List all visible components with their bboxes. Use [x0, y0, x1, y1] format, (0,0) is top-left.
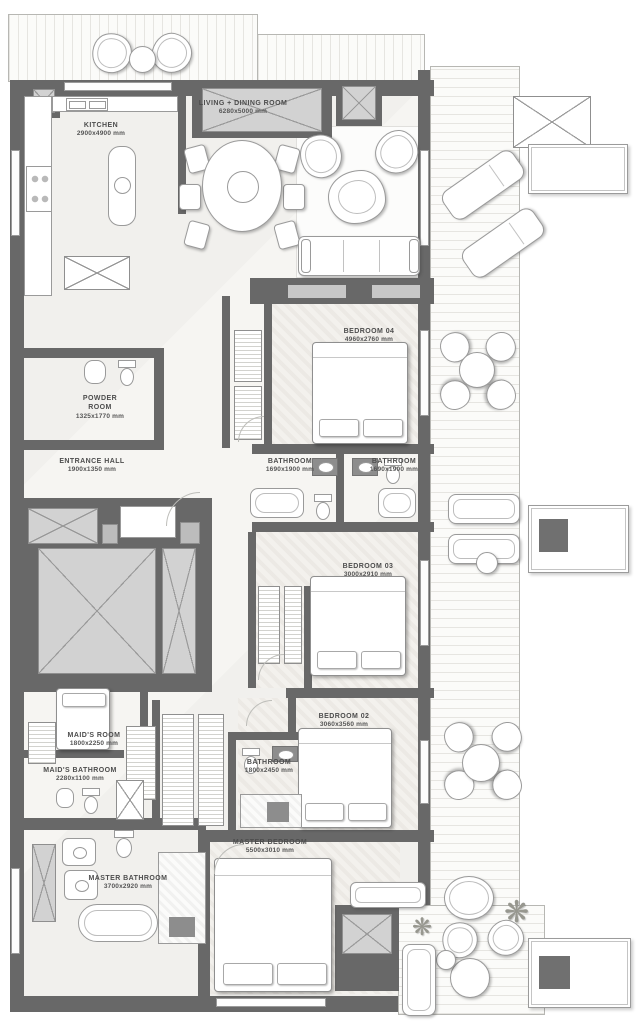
toilet-bowl: [120, 368, 134, 386]
terrace-table-3: [450, 958, 490, 998]
wardrobe: [234, 330, 262, 382]
pillow: [361, 651, 401, 669]
room-label-bathroom-a: BATHROOM 1690x1900 mm: [255, 457, 325, 475]
sink-basin: [69, 101, 86, 109]
sink-basin: [89, 101, 106, 109]
master-toilet: [114, 830, 134, 858]
dining-chair: [179, 184, 201, 210]
blanket-line: [311, 591, 405, 592]
powder-toilet: [118, 360, 136, 386]
dining-table: [202, 140, 282, 232]
room-label-powder-room: POWDER ROOM 1325x1770 mm: [70, 394, 130, 422]
wall-corridor-bed04: [222, 296, 230, 448]
bench-cushion: [355, 887, 421, 903]
window-bed02: [420, 740, 429, 804]
toilet-bowl: [84, 796, 98, 814]
terrace-side-table: [476, 552, 498, 574]
tv-console-2: [372, 285, 420, 298]
blanket-line: [313, 357, 407, 358]
bench-cushion: [453, 499, 515, 519]
wall-bed03-bed02: [286, 688, 434, 698]
maid-shower: [116, 780, 144, 820]
floor-plan: ❋ ❋: [0, 0, 641, 1024]
toilet-a: [314, 494, 332, 520]
master-bathtub: [78, 904, 158, 942]
bed-bedroom-03: [310, 576, 406, 676]
shower-tray: [383, 493, 411, 513]
toilet-bowl: [116, 838, 132, 858]
pillow: [305, 803, 344, 821]
room-label-bedroom-02: BEDROOM 02 3060x3560 mm: [289, 712, 399, 730]
room-label-maids-room: MAID'S ROOM 1800x2250 mm: [39, 731, 149, 749]
island-hob: [114, 177, 131, 194]
wall-bed03-left: [248, 532, 256, 688]
room-label-bathroom-c: BATHROOM 1800x2450 mm: [234, 758, 304, 776]
pillow: [317, 651, 357, 669]
small-duct-1: [102, 524, 118, 544]
terrace-side-table-2: [436, 950, 456, 970]
window-master-bottom: [216, 998, 326, 1007]
terrace-bench: [448, 494, 520, 524]
window-kitchen-left: [11, 150, 20, 236]
top-balcony-deck: [8, 14, 258, 82]
toilet-tank: [82, 788, 100, 796]
sofa-armrest: [301, 239, 311, 273]
chair-cushion: [489, 921, 524, 956]
wall-bed04-left: [264, 296, 272, 448]
coffee-table-top: [338, 180, 376, 214]
pillow: [277, 963, 327, 985]
wardrobe: [162, 714, 194, 826]
pillow: [319, 419, 359, 437]
room-label-master-bathroom: MASTER BATHROOM 3700x2920 mm: [73, 874, 183, 892]
room-label-living-dining: LIVING + DINING ROOM 6280x5000 mm: [188, 99, 298, 117]
sofa-cushion-line: [343, 240, 344, 272]
shower-b: [378, 488, 416, 518]
planter-top: [528, 144, 628, 194]
laundry-shaft: [32, 844, 56, 922]
shower-c: [240, 794, 302, 828]
shower-mat: [267, 802, 289, 822]
master-bench: [350, 882, 426, 908]
terrace-table-2: [462, 744, 500, 782]
duct-crossed-box-living: [342, 86, 376, 120]
pillow: [223, 963, 273, 985]
planter-accent-square-2: [539, 956, 570, 989]
room-label-maids-bathroom: MAID'S BATHROOM 2280x1100 mm: [25, 766, 135, 784]
window-kitchen: [64, 82, 172, 91]
balcony-table: [129, 46, 156, 73]
bed-master: [214, 858, 332, 992]
shower-mat: [169, 917, 195, 937]
table-centerpiece: [227, 171, 259, 203]
bathtub-a: [250, 488, 304, 518]
chair-cushion: [449, 881, 489, 915]
wardrobe: [284, 586, 302, 664]
lounger-backrest: [489, 165, 505, 187]
kitchen-sink: [66, 98, 108, 111]
duct-shaft-tall: [162, 548, 196, 674]
toilet-tank: [114, 830, 134, 838]
sofa: [298, 236, 420, 276]
kitchen-cabinet: [64, 256, 130, 290]
corner-shaft-crossed-box: [342, 914, 392, 954]
round-lounge-chair: [444, 876, 494, 920]
plant-icon: ❋: [412, 916, 432, 940]
terrace-chaise: [402, 944, 436, 1016]
toilet-tank: [314, 494, 332, 502]
room-label-kitchen: KITCHEN 2900x4900 mm: [46, 121, 156, 139]
planter-accent-square: [539, 519, 568, 552]
master-shower: [158, 852, 206, 944]
pillow: [348, 803, 387, 821]
wall-bathc-left: [228, 740, 236, 832]
window-masterbath: [11, 868, 20, 954]
wall-bathrooms-bed03: [252, 522, 434, 532]
room-label-bathroom-b: BATHROOM 1690x1900 mm: [359, 457, 429, 475]
pillow: [62, 693, 106, 707]
maid-toilet: [82, 788, 100, 814]
stove: [26, 166, 52, 212]
bed-bedroom-04: [312, 342, 408, 444]
top-balcony-deck-right: [257, 34, 425, 82]
chair-cushion: [94, 35, 130, 71]
terrace-table: [459, 352, 495, 388]
blanket-line: [299, 743, 391, 744]
room-label-bedroom-03: BEDROOM 03 3000x2910 mm: [313, 562, 423, 580]
powder-sink: [84, 360, 106, 384]
terrace-crossed-box: [513, 96, 591, 148]
tub-basin: [255, 493, 299, 513]
sofa-armrest: [409, 239, 419, 273]
blanket-line: [215, 875, 331, 876]
coffee-table: [328, 170, 386, 224]
chaise-cushion: [407, 949, 431, 1011]
wall-powder-top: [24, 348, 164, 358]
wall-powder-right: [154, 358, 164, 440]
room-label-bedroom-04: BEDROOM 04 4960x2760 mm: [314, 327, 424, 345]
elevator-shaft: [38, 548, 156, 674]
room-label-master-bedroom: MASTER BEDROOM 5500x3010 mm: [215, 838, 325, 856]
room-label-entrance-hall: ENTRANCE HALL 1900x1350 mm: [37, 457, 147, 475]
toilet-bowl: [316, 502, 330, 520]
wardrobe: [258, 586, 280, 664]
pillow: [363, 419, 403, 437]
sofa-cushion-line: [379, 240, 380, 272]
lounger-backrest: [509, 223, 525, 245]
dining-chair: [283, 184, 305, 210]
tub-basin: [84, 910, 152, 936]
window-living: [420, 150, 429, 246]
bed-bedroom-02: [298, 728, 392, 828]
kitchen-island: [108, 146, 136, 226]
master-basin: [62, 838, 96, 866]
toilet-tank: [118, 360, 136, 368]
planter-bottom: [528, 938, 631, 1008]
maid-sink: [56, 788, 74, 808]
shaft-top-box: [28, 508, 98, 544]
toilet-tank: [242, 748, 260, 756]
wardrobe: [198, 714, 224, 826]
chair-cushion: [154, 35, 190, 71]
basin-bowl: [73, 847, 87, 859]
tv-console: [288, 285, 346, 298]
planter-middle: [528, 505, 629, 573]
wall-powder-bottom: [24, 440, 164, 450]
